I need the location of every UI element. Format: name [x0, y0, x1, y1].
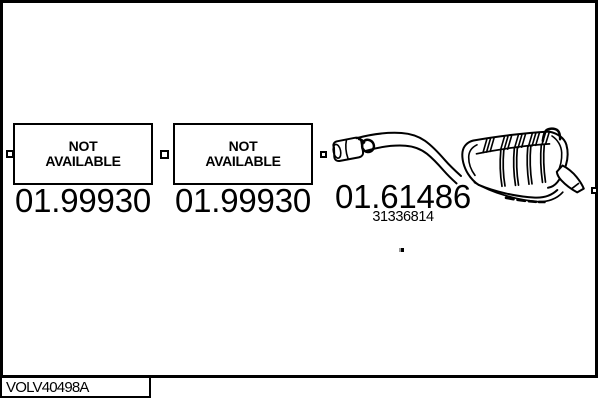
part-1-availability-line1: NOT: [69, 139, 98, 155]
inlet-coupling: [332, 138, 363, 161]
part-1-availability-line2: AVAILABLE: [45, 154, 120, 170]
part-2-not-available-box: NOT AVAILABLE: [173, 123, 313, 185]
tail-pipe: [557, 166, 584, 193]
part-1-number: 01.99930: [13, 184, 153, 217]
diagram-code-label: VOLV40498A: [2, 380, 89, 395]
part-2-availability-line2: AVAILABLE: [205, 154, 280, 170]
diagram-code-box: VOLV40498A: [0, 378, 151, 398]
stray-mark: [399, 248, 404, 252]
part-1-not-available-box: NOT AVAILABLE: [13, 123, 153, 185]
connector-mid-1-icon: [160, 150, 169, 159]
parts-diagram: NOT AVAILABLE 01.99930 NOT AVAILABLE 01.…: [0, 0, 600, 400]
part-3-oem-number: 31336814: [332, 210, 474, 225]
part-2-number: 01.99930: [173, 184, 313, 217]
part-2-availability-line1: NOT: [229, 139, 258, 155]
muffler-body: [462, 132, 567, 202]
front-ribs: [500, 144, 545, 186]
